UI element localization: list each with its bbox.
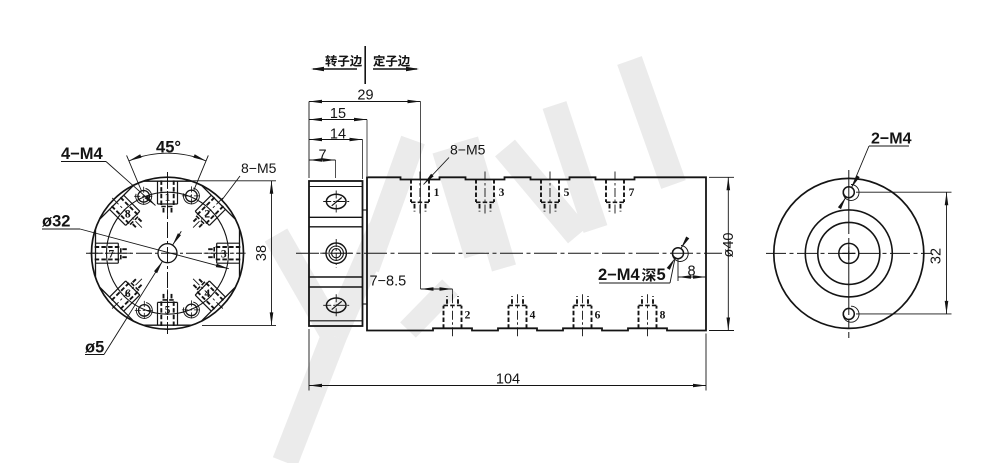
- svg-text:6: 6: [125, 288, 131, 300]
- svg-text:ø32: ø32: [42, 213, 70, 231]
- svg-text:7: 7: [318, 148, 326, 164]
- svg-text:2: 2: [465, 310, 471, 322]
- svg-text:45°: 45°: [156, 139, 181, 157]
- svg-text:ø40: ø40: [721, 233, 737, 258]
- svg-text:8: 8: [125, 209, 131, 221]
- svg-text:8: 8: [660, 310, 666, 322]
- svg-text:2−M4: 2−M4: [598, 266, 641, 284]
- svg-text:8−M5: 8−M5: [450, 141, 486, 157]
- svg-text:3: 3: [499, 187, 505, 199]
- svg-text:8: 8: [687, 264, 695, 280]
- svg-text:2−M4: 2−M4: [871, 131, 912, 148]
- svg-text:2: 2: [204, 209, 210, 221]
- svg-text:5: 5: [657, 266, 666, 284]
- svg-text:38: 38: [254, 245, 270, 261]
- svg-text:32: 32: [929, 248, 945, 264]
- svg-text:1: 1: [165, 192, 171, 204]
- svg-text:1: 1: [434, 187, 440, 199]
- svg-text:104: 104: [496, 372, 520, 388]
- svg-text:4: 4: [204, 288, 210, 300]
- svg-text:3: 3: [221, 248, 227, 260]
- svg-text:7: 7: [108, 248, 114, 260]
- svg-text:4: 4: [530, 310, 536, 322]
- svg-text:7−8.5: 7−8.5: [370, 274, 407, 290]
- svg-text:29: 29: [357, 88, 373, 104]
- svg-text:8−M5: 8−M5: [241, 160, 277, 176]
- svg-text:15: 15: [330, 106, 346, 122]
- svg-text:4−M4: 4−M4: [61, 145, 104, 163]
- svg-text:5: 5: [165, 305, 171, 317]
- svg-text:5: 5: [564, 187, 570, 199]
- svg-text:14: 14: [330, 127, 346, 143]
- svg-text:7: 7: [629, 187, 635, 199]
- svg-text:ø5: ø5: [85, 339, 104, 357]
- svg-text:6: 6: [595, 310, 601, 322]
